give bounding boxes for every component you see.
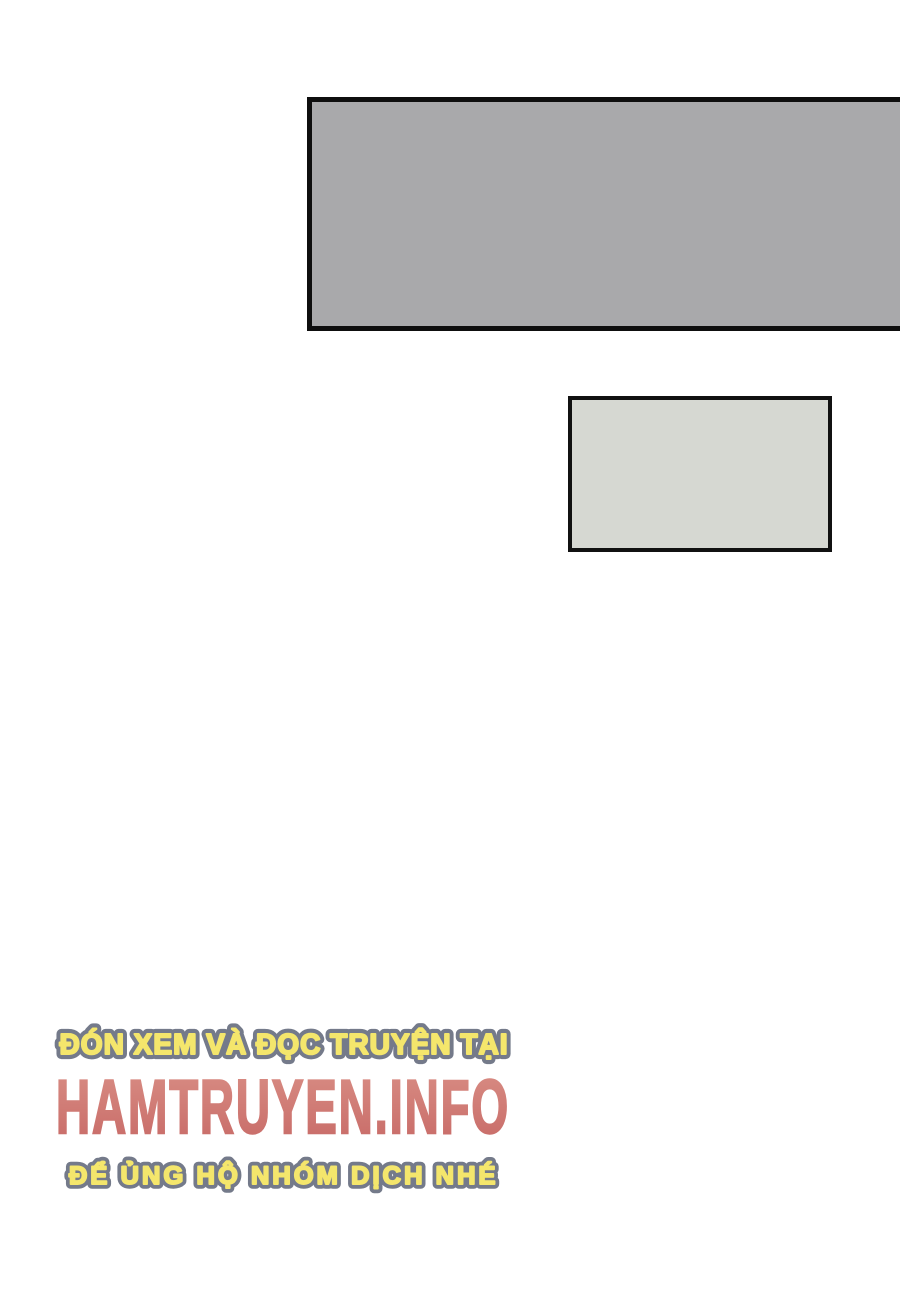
svg-text:ĐÓN XEM VÀ ĐỌC TRUYỆN TẠI: ĐÓN XEM VÀ ĐỌC TRUYỆN TẠI: [60, 1029, 509, 1061]
svg-text:HAMTRUYEN.INFO: HAMTRUYEN.INFO: [56, 1064, 510, 1149]
svg-text:ĐỂ ỦNG HỘ NHÓM DỊCH NHÉ: ĐỂ ỦNG HỘ NHÓM DỊCH NHÉ: [69, 1159, 499, 1190]
